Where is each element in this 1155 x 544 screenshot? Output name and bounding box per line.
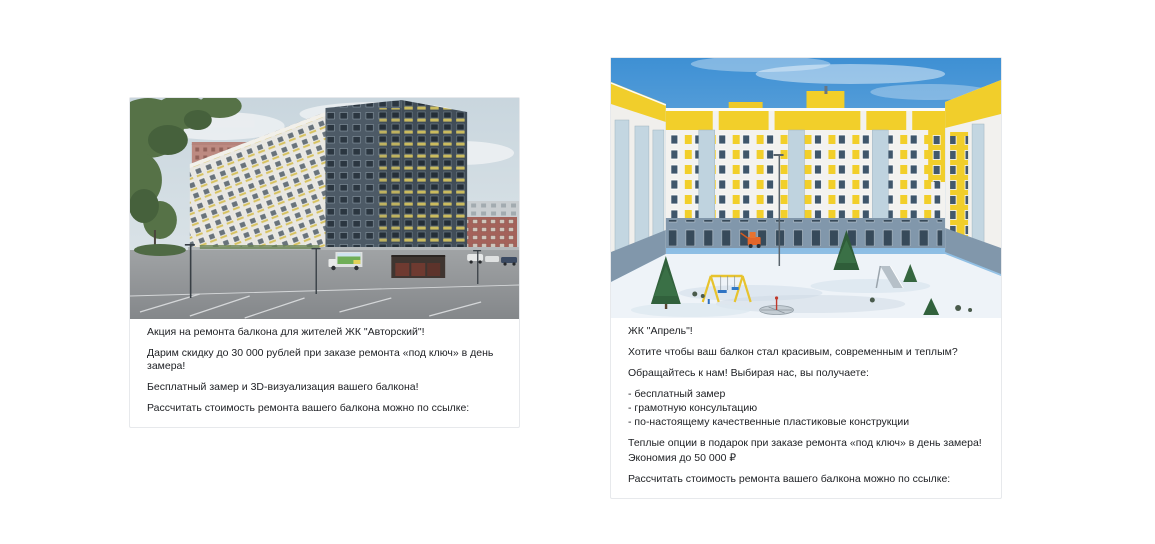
post-paragraph: Дарим скидку до 30 000 рублей при заказе… [147,347,502,373]
post-list-item: - грамотную консультацию [628,402,984,415]
post-paragraph: Хотите чтобы ваш балкон стал красивым, с… [628,346,984,359]
post-list-item: - бесплатный замер [628,388,984,401]
grey-tower [325,100,467,268]
person-figure [708,299,710,304]
post-paragraph: Бесплатный замер и 3D-визуализация вашег… [147,381,502,394]
parking-lot [130,245,519,319]
post-paragraph: Экономия до 50 000 ₽ [628,452,984,465]
ads-preview-page: { "page": { "background": "#ffffff" }, "… [0,0,1155,544]
post-list-item: - по-настоящему качественные пластиковые… [628,416,984,429]
avtorsky-photo-illustration [130,98,519,319]
post-paragraph: ЖК "Апрель"! [628,325,984,338]
post-paragraph: Рассчитать стоимость ремонта вашего балк… [628,473,984,486]
avtorsky-post-text: Акция на ремонта балкона для жителей ЖК … [130,319,519,427]
dumpster-enclosure [391,255,445,278]
post-paragraph: Акция на ремонта балкона для жителей ЖК … [147,326,502,339]
post-card-aprel: ЖК "Апрель"! Хотите чтобы ваш балкон ста… [610,57,1002,499]
post-paragraph: Рассчитать стоимость ремонта вашего балк… [147,402,502,415]
post-card-avtorsky: Акция на ремонта балкона для жителей ЖК … [129,97,520,428]
post-paragraph: Теплые опции в подарок при заказе ремонт… [628,437,984,450]
avtorsky-photo[interactable] [130,98,519,319]
aprel-photo[interactable] [611,58,1001,318]
aprel-photo-illustration [611,58,1001,318]
post-paragraph: Обращайтесь к нам! Выбирая нас, вы получ… [628,367,984,380]
aprel-post-text: ЖК "Апрель"! Хотите чтобы ваш балкон ста… [611,318,1001,498]
